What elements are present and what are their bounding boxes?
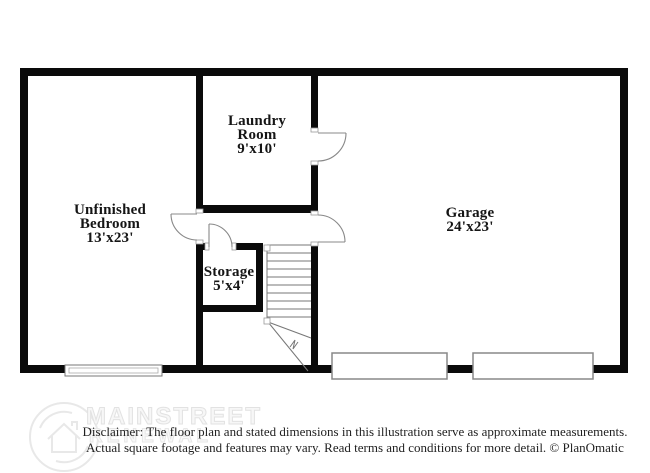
room-label-laundry: Laundry Room 9'x10' xyxy=(217,114,297,157)
room-name: Garage xyxy=(420,206,520,220)
garage-door-left xyxy=(332,353,447,379)
disclaimer-line2: Actual square footage and features may v… xyxy=(75,440,635,456)
staircase xyxy=(267,245,311,371)
room-label-storage: Storage 5'x4' xyxy=(184,265,274,294)
garage-door-right xyxy=(473,353,593,379)
disclaimer-text: Disclaimer: The floor plan and stated di… xyxy=(75,424,635,455)
hall-to-garage-door-arc xyxy=(318,215,345,242)
room-name: Storage xyxy=(184,265,274,279)
bedroom-window xyxy=(65,365,162,376)
laundry-door-arc xyxy=(318,133,346,161)
bedroom-door-arc xyxy=(171,214,197,240)
room-name: Laundry Room xyxy=(217,114,297,142)
storage-door-arc xyxy=(209,224,232,247)
disclaimer-line1: Disclaimer: The floor plan and stated di… xyxy=(75,424,635,440)
room-dims: 24'x23' xyxy=(420,220,520,235)
floorplan-page: Laundry Room 9'x10' Unfinished Bedroom 1… xyxy=(0,0,650,473)
room-label-garage: Garage 24'x23' xyxy=(420,206,520,235)
room-dims: 13'x23' xyxy=(60,231,160,246)
room-dims: 5'x4' xyxy=(184,279,274,294)
room-name: Unfinished Bedroom xyxy=(60,203,160,231)
room-label-bedroom: Unfinished Bedroom 13'x23' xyxy=(60,203,160,246)
room-dims: 9'x10' xyxy=(217,142,297,157)
